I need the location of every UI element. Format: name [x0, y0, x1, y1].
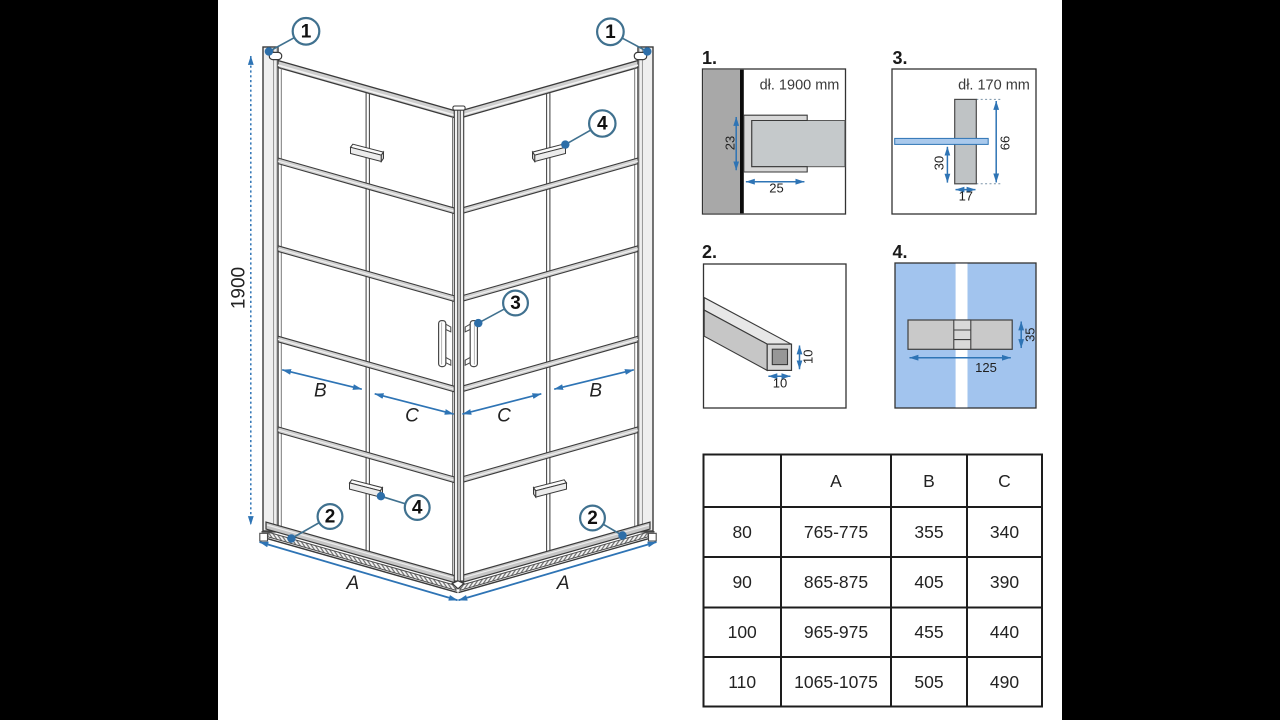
svg-text:B: B — [314, 380, 327, 401]
svg-text:A: A — [345, 573, 359, 594]
svg-text:10: 10 — [773, 376, 787, 391]
svg-text:965-975: 965-975 — [804, 622, 868, 642]
svg-text:A: A — [556, 573, 570, 594]
svg-text:C: C — [998, 471, 1011, 491]
svg-text:1: 1 — [605, 22, 616, 43]
svg-text:17: 17 — [959, 189, 973, 204]
svg-text:C: C — [497, 405, 511, 426]
svg-text:1900: 1900 — [229, 267, 250, 309]
svg-text:C: C — [405, 405, 419, 426]
svg-text:dł. 1900 mm: dł. 1900 mm — [760, 78, 840, 94]
svg-text:455: 455 — [914, 622, 943, 642]
svg-text:4: 4 — [597, 114, 608, 135]
svg-text:B: B — [589, 380, 602, 401]
svg-text:dł. 170 mm: dł. 170 mm — [958, 78, 1030, 94]
svg-text:23: 23 — [723, 136, 738, 150]
svg-text:390: 390 — [990, 572, 1019, 592]
svg-text:25: 25 — [769, 181, 783, 196]
svg-text:355: 355 — [914, 522, 943, 542]
svg-text:3.: 3. — [893, 48, 908, 68]
svg-text:490: 490 — [990, 672, 1019, 692]
svg-text:A: A — [830, 471, 842, 491]
svg-text:110: 110 — [728, 672, 756, 692]
svg-text:440: 440 — [990, 622, 1019, 642]
svg-text:B: B — [923, 471, 935, 491]
svg-text:1.: 1. — [702, 48, 717, 68]
svg-text:865-875: 865-875 — [804, 572, 868, 592]
svg-text:30: 30 — [932, 156, 947, 170]
svg-text:125: 125 — [975, 360, 997, 375]
svg-text:2: 2 — [587, 508, 598, 529]
svg-text:2.: 2. — [702, 242, 717, 262]
svg-text:505: 505 — [914, 672, 943, 692]
svg-text:1: 1 — [301, 21, 312, 42]
svg-text:3: 3 — [510, 293, 521, 314]
svg-text:1065-1075: 1065-1075 — [794, 672, 878, 692]
svg-text:100: 100 — [728, 622, 757, 642]
svg-text:4: 4 — [412, 498, 423, 519]
svg-text:80: 80 — [732, 522, 752, 542]
svg-text:765-775: 765-775 — [804, 522, 868, 542]
svg-text:2: 2 — [325, 507, 336, 528]
svg-text:35: 35 — [1023, 327, 1038, 341]
svg-text:405: 405 — [914, 572, 943, 592]
svg-text:4.: 4. — [893, 242, 908, 262]
svg-text:66: 66 — [998, 136, 1013, 150]
svg-text:10: 10 — [801, 350, 816, 364]
svg-text:90: 90 — [732, 572, 752, 592]
svg-text:340: 340 — [990, 522, 1019, 542]
